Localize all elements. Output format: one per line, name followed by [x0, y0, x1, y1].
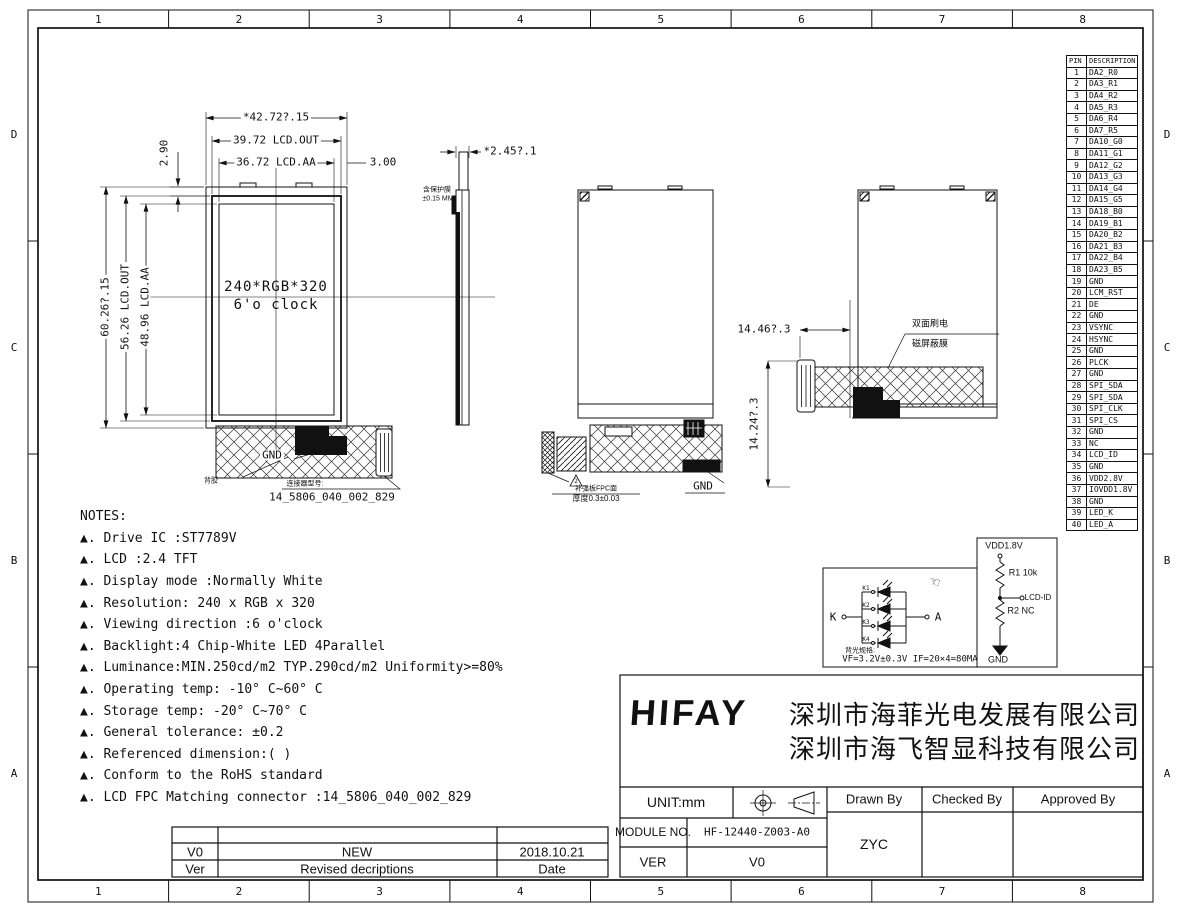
pin-description: GND: [1087, 369, 1138, 381]
note-line: ▲. Resolution: 240 x RGB x 320: [80, 592, 503, 614]
zone-number: 6: [731, 881, 872, 901]
warn-triangle-number: 2: [574, 479, 578, 485]
pin-number: 12: [1067, 195, 1087, 207]
pin-description: LED_A: [1087, 519, 1138, 531]
pin-row: 9 DA12_G2: [1067, 160, 1138, 172]
pin-description: SPI_CLK: [1087, 403, 1138, 415]
zone-number: 5: [591, 881, 732, 901]
led-k1-label: K1: [862, 586, 869, 592]
notes-title: NOTES:: [80, 506, 503, 528]
connector-pn-label: 14_5806_040_002_829: [269, 492, 395, 503]
zone-letter: A: [2, 667, 26, 880]
dim-right-margin-label: 3.00: [368, 157, 399, 168]
dim-thickness-label: *2.45?.1: [482, 146, 539, 157]
pin-description: IOVDD1.8V: [1087, 484, 1138, 496]
pin-number: 22: [1067, 311, 1087, 323]
pin-row: 12 DA15_G5: [1067, 195, 1138, 207]
pin-number: 32: [1067, 427, 1087, 439]
note-line: ▲. Operating temp: -10° C~60° C: [80, 679, 503, 701]
company-name-2: 深圳市海飞智显科技有限公司: [768, 729, 1140, 766]
pin-number: 24: [1067, 334, 1087, 346]
pin-number: 15: [1067, 229, 1087, 241]
pin-description: GND: [1087, 496, 1138, 508]
revision-date-header: Date: [538, 863, 565, 876]
drawing-sheet: 12345678 12345678 DCBA DCBA *42.72?.15 3…: [0, 0, 1181, 912]
pin-number: 5: [1067, 113, 1087, 125]
pin-table: PIN DESCRIPTION 1 DA2_R0 2 DA3_R1 3 DA4_…: [1066, 55, 1138, 531]
pin-number: 33: [1067, 438, 1087, 450]
pin-row: 14 DA19_B1: [1067, 218, 1138, 230]
pin-row: 31 SPI_CS: [1067, 415, 1138, 427]
pin-number: 10: [1067, 171, 1087, 183]
pin-number: 39: [1067, 508, 1087, 520]
pin-number: 38: [1067, 496, 1087, 508]
pin-description: DA6_R4: [1087, 113, 1138, 125]
note-line: ▲. Referenced dimension:( ): [80, 744, 503, 766]
pin-number: 20: [1067, 287, 1087, 299]
pin-row: 11 DA14_G4: [1067, 183, 1138, 195]
dim-height-aa-label: 48.96 LCD.AA: [140, 265, 151, 348]
pin-row: 34 LCD_ID: [1067, 450, 1138, 462]
note-line: ▲. Conform to the RoHS standard: [80, 765, 503, 787]
pin-description: DA4_R2: [1087, 90, 1138, 102]
side-note-1: 含保护膜: [423, 187, 451, 194]
pin-description: DA19_B1: [1087, 218, 1138, 230]
notes-section: NOTES: ▲. Drive IC :ST7789V▲. LCD :2.4 T…: [80, 506, 503, 808]
revision-date-value: 2018.10.21: [519, 846, 584, 859]
pin-row: 7 DA10_G0: [1067, 137, 1138, 149]
module-no-value: HF-12440-Z003-A0: [704, 827, 810, 838]
led-a-terminal-label: A: [935, 612, 942, 623]
company-logo: HIFAY: [629, 692, 750, 734]
pin-row: 20 LCM_RST: [1067, 287, 1138, 299]
pin-description: DA14_G4: [1087, 183, 1138, 195]
zone-numbers-top: 12345678: [28, 10, 1153, 28]
company-name-1: 深圳市海菲光电发展有限公司: [768, 695, 1140, 732]
note-line: ▲. Luminance:MIN.250cd/m2 TYP.290cd/m2 U…: [80, 657, 503, 679]
pin-number: 37: [1067, 484, 1087, 496]
pin-number: 1: [1067, 67, 1087, 79]
pin-row: 22 GND: [1067, 311, 1138, 323]
note-line: ▲. LCD FPC Matching connector :14_5806_0…: [80, 787, 503, 809]
zone-letter: D: [1155, 28, 1179, 241]
zone-number: 8: [1012, 10, 1153, 28]
pin-description: NC: [1087, 438, 1138, 450]
pin-description: LCM_RST: [1087, 287, 1138, 299]
pin-number: 25: [1067, 345, 1087, 357]
pin-description: DA13_G3: [1087, 171, 1138, 183]
led-k-terminal-label: K: [830, 612, 837, 623]
ver-value: V0: [749, 856, 765, 869]
pin-number: 27: [1067, 369, 1087, 381]
checked-by-header: Checked By: [932, 793, 1002, 806]
pin-description: DA5_R3: [1087, 102, 1138, 114]
pin-description: HSYNC: [1087, 334, 1138, 346]
pin-row: 32 GND: [1067, 427, 1138, 439]
zone-number: 3: [309, 881, 450, 901]
pin-description: DA7_R5: [1087, 125, 1138, 137]
dim-height-total-label: 60.26?.15: [100, 275, 111, 339]
zone-number: 3: [309, 10, 450, 28]
dim-width-aa-label: 36.72 LCD.AA: [234, 157, 317, 168]
pin-table-header: PIN DESCRIPTION: [1067, 56, 1138, 68]
pin-number: 9: [1067, 160, 1087, 172]
pin-number: 8: [1067, 148, 1087, 160]
pin-row: 8 DA11_G1: [1067, 148, 1138, 160]
pin-number: 35: [1067, 461, 1087, 473]
zone-number: 2: [169, 10, 310, 28]
zone-number: 1: [28, 10, 169, 28]
pin-row: 38 GND: [1067, 496, 1138, 508]
pin-col-header: PIN: [1067, 56, 1087, 68]
pin-number: 11: [1067, 183, 1087, 195]
lcd-id-label: LCD-ID: [1025, 594, 1052, 602]
approved-by-header: Approved By: [1041, 793, 1115, 806]
zone-letter: C: [1155, 241, 1179, 454]
revision-ver-header: Ver: [185, 863, 205, 876]
pin-number: 23: [1067, 322, 1087, 334]
zone-letter: B: [1155, 454, 1179, 667]
pin-description: DA10_G0: [1087, 137, 1138, 149]
fold-fpc-note-2: 厚度0.3±0.03: [572, 495, 619, 503]
note-line: ▲. LCD :2.4 TFT: [80, 549, 503, 571]
pin-description: VDD2.8V: [1087, 473, 1138, 485]
pin-number: 13: [1067, 206, 1087, 218]
pin-description: DA15_G5: [1087, 195, 1138, 207]
led-k4-label: K4: [862, 637, 869, 643]
pin-description: DA11_G1: [1087, 148, 1138, 160]
zone-number: 2: [169, 881, 310, 901]
module-no-label: MODULE NO.: [615, 826, 691, 838]
pin-number: 34: [1067, 450, 1087, 462]
pin-description: GND: [1087, 311, 1138, 323]
dim-top-label: 2.90: [159, 138, 170, 169]
pin-description: DA23_B5: [1087, 264, 1138, 276]
pin-number: 2: [1067, 79, 1087, 91]
pin-description: VSYNC: [1087, 322, 1138, 334]
pin-row: 23 VSYNC: [1067, 322, 1138, 334]
pullup-gnd-label: GND: [988, 656, 1008, 665]
pin-description: DA12_G2: [1087, 160, 1138, 172]
pin-row: 30 SPI_CLK: [1067, 403, 1138, 415]
zone-number: 5: [591, 10, 732, 28]
pin-description: GND: [1087, 276, 1138, 288]
note-line: ▲. Display mode :Normally White: [80, 571, 503, 593]
note-line: ▲. Drive IC :ST7789V: [80, 528, 503, 550]
pin-number: 31: [1067, 415, 1087, 427]
front-gnd-label: GND: [260, 450, 284, 461]
pin-row: 37 IOVDD1.8V: [1067, 484, 1138, 496]
fold-fpc-note-1: 补强板FPC面: [575, 486, 617, 493]
pin-number: 19: [1067, 276, 1087, 288]
viewing-direction-label: 6'o clock: [234, 298, 319, 312]
revision-desc-header: Revised decriptions: [300, 863, 413, 876]
zone-letter: A: [1155, 667, 1179, 880]
pin-description: PLCK: [1087, 357, 1138, 369]
projection-symbol: [750, 790, 820, 816]
pin-row: 33 NC: [1067, 438, 1138, 450]
zone-number: 4: [450, 10, 591, 28]
note-line: ▲. General tolerance: ±0.2: [80, 722, 503, 744]
pin-number: 40: [1067, 519, 1087, 531]
pin-number: 29: [1067, 392, 1087, 404]
pin-number: 14: [1067, 218, 1087, 230]
pin-description: GND: [1087, 427, 1138, 439]
revision-ver-value: V0: [187, 846, 203, 859]
pin-number: 7: [1067, 137, 1087, 149]
dim-height-out-label: 56.26 LCD.OUT: [120, 262, 131, 352]
zone-numbers-bottom: 12345678: [28, 881, 1153, 901]
shield-view: [768, 300, 999, 487]
pin-row: 13 DA18_B0: [1067, 206, 1138, 218]
shield-label-1: 双面刷电: [912, 320, 948, 329]
pin-number: 36: [1067, 473, 1087, 485]
zone-number: 6: [731, 10, 872, 28]
pin-row: 29 SPI_SDA: [1067, 392, 1138, 404]
led-k3-label: K3: [862, 620, 869, 626]
pin-description: DA20_B2: [1087, 229, 1138, 241]
pin-description: DA21_B3: [1087, 241, 1138, 253]
unit-label: UNIT:mm: [647, 795, 705, 809]
pin-description: SPI_SDA: [1087, 392, 1138, 404]
pullup-circuit: [977, 538, 1057, 667]
pin-row: 25 GND: [1067, 345, 1138, 357]
zone-number: 4: [450, 881, 591, 901]
pin-description: GND: [1087, 345, 1138, 357]
pin-row: 21 DE: [1067, 299, 1138, 311]
pin-row: 10 DA13_G3: [1067, 171, 1138, 183]
zone-number: 1: [28, 881, 169, 901]
drawn-by-value: ZYC: [860, 837, 888, 851]
pin-row: 27 GND: [1067, 369, 1138, 381]
pin-description: GND: [1087, 461, 1138, 473]
pin-row: 26 PLCK: [1067, 357, 1138, 369]
pin-row: 35 GND: [1067, 461, 1138, 473]
pin-row: 15 DA20_B2: [1067, 229, 1138, 241]
pin-description: DA18_B0: [1087, 206, 1138, 218]
pin-row: 6 DA7_R5: [1067, 125, 1138, 137]
pin-number: 26: [1067, 357, 1087, 369]
pin-description: DE: [1087, 299, 1138, 311]
pin-row: 1 DA2_R0: [1067, 67, 1138, 79]
drawn-by-header: Drawn By: [846, 793, 902, 806]
dim-width-out-label: 39.72 LCD.OUT: [231, 135, 321, 146]
pin-description: DA2_R0: [1087, 67, 1138, 79]
pin-number: 4: [1067, 102, 1087, 114]
r2-label: R2 NC: [1007, 607, 1034, 616]
pin-description: LED_K: [1087, 508, 1138, 520]
zone-letter: D: [2, 28, 26, 241]
side-note-2: ±0.15 MM: [422, 196, 453, 203]
note-line: ▲. Viewing direction :6 o'clock: [80, 614, 503, 636]
pin-description: SPI_CS: [1087, 415, 1138, 427]
pin-description: DA22_B4: [1087, 253, 1138, 265]
pin-description: SPI_SDA: [1087, 380, 1138, 392]
dim-shield-v-label: 14.24?.3: [749, 396, 760, 453]
pin-row: 19 GND: [1067, 276, 1138, 288]
pin-description: DA3_R1: [1087, 79, 1138, 91]
backlight-spec-value: VF=3.2V±0.3V IF=20×4=80MA: [842, 656, 977, 665]
pin-row: 39 LED_K: [1067, 508, 1138, 520]
pin-number: 30: [1067, 403, 1087, 415]
pin-row: 16 DA21_B3: [1067, 241, 1138, 253]
ver-label: VER: [640, 856, 667, 869]
notes-list: ▲. Drive IC :ST7789V▲. LCD :2.4 TFT▲. Di…: [80, 528, 503, 809]
pin-row: 4 DA5_R3: [1067, 102, 1138, 114]
pin-number: 6: [1067, 125, 1087, 137]
pin-number: 18: [1067, 264, 1087, 276]
backlight-spec-label: 背光规格:: [845, 648, 875, 655]
resolution-label: 240*RGB*320: [224, 280, 328, 294]
pin-number: 17: [1067, 253, 1087, 265]
note-line: ▲. Backlight:4 Chip-White LED 4Parallel: [80, 636, 503, 658]
pin-number: 28: [1067, 380, 1087, 392]
adhesive-label: 背胶: [204, 478, 218, 485]
note-line: ▲. Storage temp: -20° C~70° C: [80, 700, 503, 722]
pin-row: 40 LED_A: [1067, 519, 1138, 531]
revision-desc-value: NEW: [342, 846, 372, 859]
pin-row: 24 HSYNC: [1067, 334, 1138, 346]
vdd-label: VDD1.8V: [985, 542, 1023, 551]
pin-row: 3 DA4_R2: [1067, 90, 1138, 102]
zone-letters-left: DCBA: [2, 28, 26, 880]
zone-number: 7: [872, 881, 1013, 901]
pin-number: 3: [1067, 90, 1087, 102]
dim-shield-h-label: 14.46?.3: [736, 324, 793, 335]
led-k2-label: K2: [862, 603, 869, 609]
pin-row: 2 DA3_R1: [1067, 79, 1138, 91]
pin-number: 21: [1067, 299, 1087, 311]
pin-row: 5 DA6_R4: [1067, 113, 1138, 125]
zone-number: 8: [1012, 881, 1153, 901]
zone-letters-right: DCBA: [1155, 28, 1179, 880]
shield-label-2: 磁屏蔽膜: [912, 340, 948, 349]
r1-label: R1 10k: [1009, 569, 1038, 578]
pin-row: 18 DA23_B5: [1067, 264, 1138, 276]
zone-letter: C: [2, 241, 26, 454]
pin-number: 16: [1067, 241, 1087, 253]
pin-row: 28 SPI_SDA: [1067, 380, 1138, 392]
pin-description: LCD_ID: [1087, 450, 1138, 462]
back-view-middle: [542, 186, 725, 494]
zone-letter: B: [2, 454, 26, 667]
pin-row: 36 VDD2.8V: [1067, 473, 1138, 485]
fold-gnd-label: GND: [693, 481, 713, 492]
pin-row: 17 DA22_B4: [1067, 253, 1138, 265]
description-col-header: DESCRIPTION: [1087, 56, 1138, 68]
dim-width-total-label: *42.72?.15: [241, 112, 311, 123]
zone-number: 7: [872, 10, 1013, 28]
connector-label: 连接器型号:: [287, 481, 324, 488]
